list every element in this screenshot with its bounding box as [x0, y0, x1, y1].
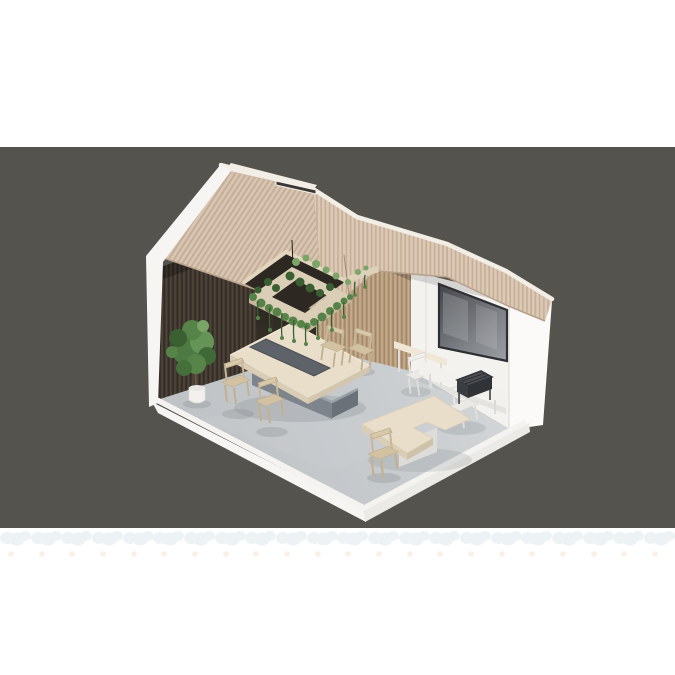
isometric-room-render: [0, 0, 675, 675]
render-canvas: [0, 0, 675, 675]
plant-pot: [189, 385, 205, 403]
screen-glare: [476, 304, 497, 350]
